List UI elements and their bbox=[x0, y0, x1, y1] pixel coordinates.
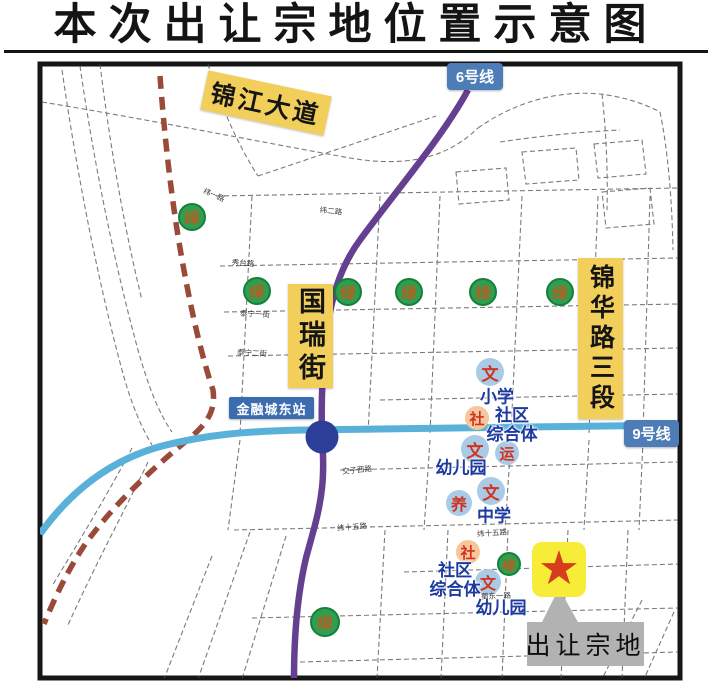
street-name-label: 泰宁二街 bbox=[237, 347, 268, 360]
parcel-callout-label: 出让宗地 bbox=[527, 622, 644, 666]
street-name-label: 纬十五路 bbox=[477, 526, 508, 539]
street-name-label: 纬一路 bbox=[201, 185, 226, 204]
street-name-label: 纬二路 bbox=[319, 204, 343, 217]
facility-marker-community: 社 bbox=[465, 406, 489, 430]
parcel-location-map: 绿绿绿绿绿绿绿绿文社文运文养社文小学社区 综合体幼儿园中学社区 综合体幼儿园纬一… bbox=[0, 0, 712, 698]
facility-label: 小学 bbox=[480, 388, 514, 407]
road-label-jinhua-road-sec3: 锦华路三段 bbox=[578, 258, 623, 419]
street-name-label: 蜀东一路 bbox=[481, 590, 512, 603]
street-name-label: 秀台路 bbox=[231, 257, 254, 270]
green-space-marker: 绿 bbox=[243, 277, 271, 305]
green-space-marker: 绿 bbox=[310, 607, 340, 637]
facility-label: 社区 综合体 bbox=[430, 561, 481, 599]
facility-label: 幼儿园 bbox=[436, 459, 487, 478]
street-name-label: 泰宁一街 bbox=[240, 308, 271, 321]
metro-station-label: 金融城东站 bbox=[229, 397, 314, 419]
road-label-guorui-street: 国瑞街 bbox=[288, 284, 333, 388]
green-space-marker: 绿 bbox=[497, 552, 521, 576]
facility-label: 社区 综合体 bbox=[487, 406, 538, 444]
facility-marker-sports: 运 bbox=[495, 441, 519, 465]
parcel-block: ★ bbox=[532, 542, 586, 597]
green-space-marker: 绿 bbox=[546, 278, 574, 306]
facility-marker-culture: 文 bbox=[476, 358, 504, 386]
facility-marker-culture: 文 bbox=[477, 477, 505, 505]
green-space-marker: 绿 bbox=[178, 203, 206, 231]
facility-label: 中学 bbox=[477, 507, 511, 526]
facility-marker-elder-care: 养 bbox=[446, 490, 472, 516]
street-name-label: 交子西路 bbox=[342, 463, 373, 477]
green-space-marker: 绿 bbox=[334, 278, 362, 306]
street-name-label: 纬十五路 bbox=[337, 520, 368, 534]
parcel-star-icon: ★ bbox=[538, 544, 580, 591]
green-space-marker: 绿 bbox=[469, 278, 497, 306]
metro-line6-label: 6号线 bbox=[447, 63, 503, 90]
green-space-marker: 绿 bbox=[395, 278, 423, 306]
metro-line9-label: 9号线 bbox=[624, 420, 679, 447]
